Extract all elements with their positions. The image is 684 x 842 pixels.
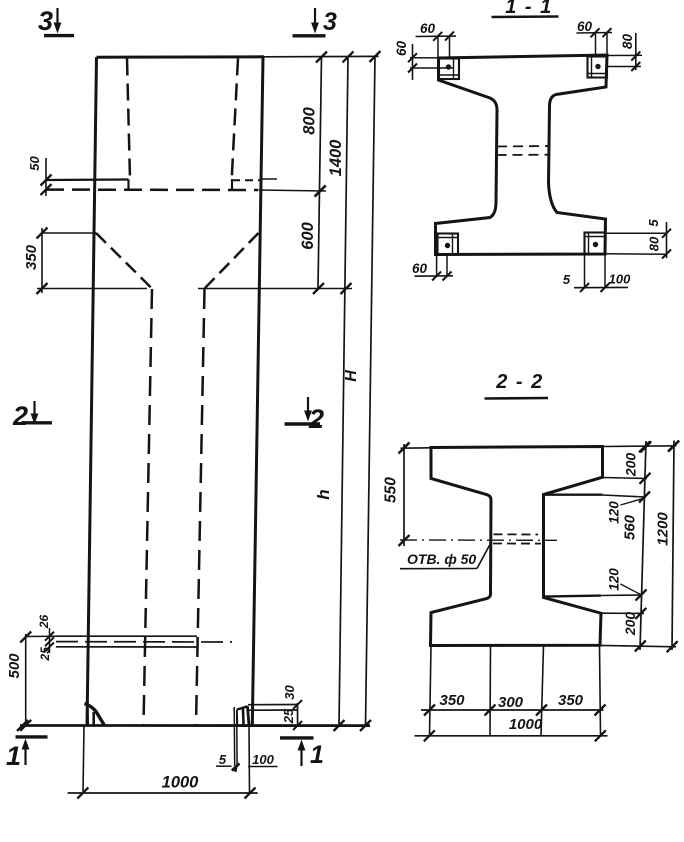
svg-text:300: 300: [498, 694, 524, 711]
svg-text:350: 350: [558, 692, 584, 709]
svg-text:350: 350: [23, 244, 40, 270]
svg-text:600: 600: [299, 221, 317, 249]
svg-text:ОТВ. ф 50: ОТВ. ф 50: [407, 551, 476, 567]
svg-text:26: 26: [37, 615, 51, 630]
svg-text:100: 100: [609, 271, 631, 286]
svg-text:5: 5: [646, 219, 661, 227]
svg-text:1000: 1000: [162, 773, 200, 791]
svg-text:500: 500: [6, 653, 23, 679]
svg-text:3: 3: [323, 8, 337, 36]
svg-text:5: 5: [563, 272, 571, 287]
svg-text:1 - 1: 1 - 1: [505, 0, 553, 18]
svg-text:2: 2: [308, 404, 324, 434]
svg-text:120: 120: [607, 501, 622, 524]
svg-text:50: 50: [27, 156, 42, 171]
svg-text:2 - 2: 2 - 2: [495, 371, 544, 393]
svg-text:60: 60: [420, 21, 436, 36]
svg-text:60: 60: [577, 19, 593, 34]
svg-text:25: 25: [38, 647, 52, 662]
svg-text:100: 100: [252, 752, 274, 767]
svg-text:550: 550: [383, 477, 400, 503]
svg-text:120: 120: [607, 568, 622, 591]
svg-text:60: 60: [394, 41, 409, 57]
svg-text:80: 80: [620, 34, 635, 50]
svg-text:h: h: [314, 489, 333, 499]
svg-text:30: 30: [282, 685, 297, 700]
svg-text:60: 60: [412, 261, 428, 276]
svg-text:200: 200: [623, 453, 639, 478]
svg-text:25: 25: [281, 708, 296, 724]
svg-text:2: 2: [12, 401, 28, 431]
svg-text:5: 5: [219, 752, 227, 767]
svg-text:350: 350: [439, 692, 465, 709]
svg-text:1: 1: [6, 741, 21, 771]
svg-text:1400: 1400: [327, 139, 345, 177]
svg-text:3: 3: [38, 6, 53, 36]
svg-text:800: 800: [300, 106, 318, 134]
svg-text:80: 80: [646, 236, 661, 251]
svg-text:560: 560: [621, 514, 638, 540]
svg-text:H: H: [343, 370, 360, 382]
svg-text:1200: 1200: [654, 512, 671, 546]
svg-text:1000: 1000: [509, 716, 543, 733]
svg-text:200: 200: [622, 612, 638, 637]
svg-text:1: 1: [310, 741, 324, 769]
